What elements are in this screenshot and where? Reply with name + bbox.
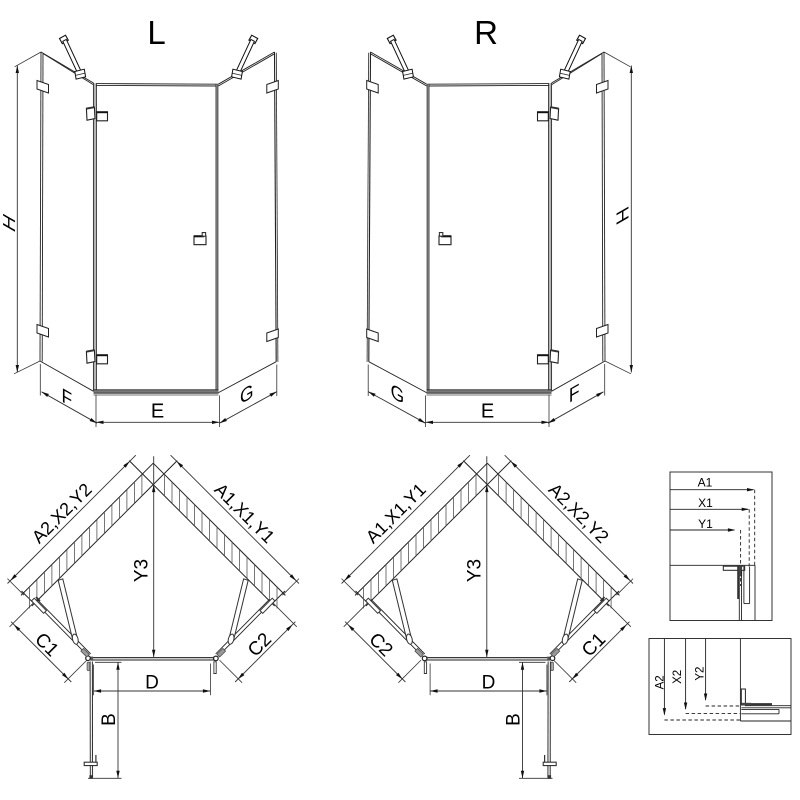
svg-text:X2: X2 (672, 670, 684, 684)
svg-text:A2: A2 (654, 675, 666, 689)
svg-text:L: L (147, 14, 165, 51)
svg-text:A1: A1 (698, 475, 713, 489)
svg-text:D: D (145, 673, 159, 694)
svg-text:B: B (99, 713, 120, 726)
svg-text:Y3: Y3 (132, 559, 153, 582)
svg-text:D: D (482, 673, 496, 694)
svg-text:E: E (481, 401, 494, 423)
svg-text:B: B (504, 713, 525, 726)
svg-text:X1: X1 (698, 496, 713, 510)
svg-text:R: R (474, 14, 498, 51)
svg-text:Y2: Y2 (694, 667, 706, 681)
svg-text:Y3: Y3 (465, 559, 486, 582)
svg-text:E: E (151, 401, 164, 423)
svg-text:Y1: Y1 (698, 517, 713, 531)
